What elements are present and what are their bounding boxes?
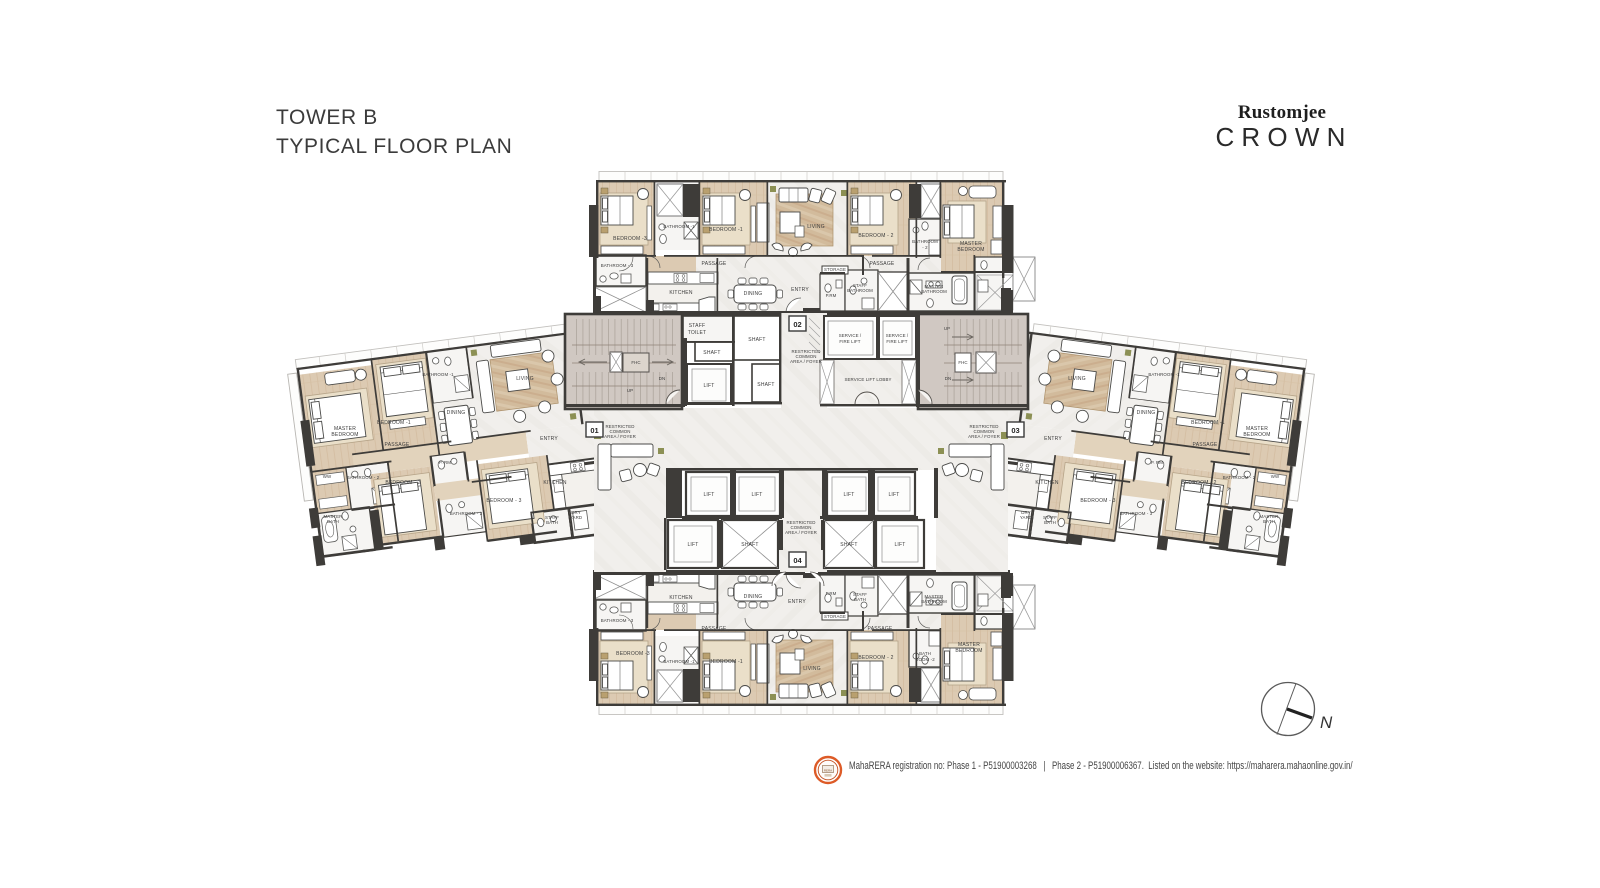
svg-text:PASSAGE: PASSAGE — [868, 626, 893, 632]
svg-text:N: N — [1320, 713, 1333, 732]
svg-text:ENTRY: ENTRY — [540, 436, 558, 442]
svg-text:AREA / FOYER: AREA / FOYER — [785, 530, 817, 535]
svg-text:LIFT: LIFT — [703, 383, 714, 389]
svg-text:FIRE LIFT: FIRE LIFT — [839, 339, 860, 344]
svg-text:FHC: FHC — [958, 360, 967, 365]
svg-text:BATHROOM -1: BATHROOM -1 — [1148, 372, 1180, 377]
svg-text:BATHROOM: BATHROOM — [912, 239, 938, 244]
svg-text:DN: DN — [659, 376, 666, 381]
svg-text:BEDROOM: BEDROOM — [955, 648, 982, 654]
svg-text:LIFT: LIFT — [894, 542, 905, 548]
svg-text:SERVICE /: SERVICE / — [839, 333, 862, 338]
svg-text:BATHROOM - 2: BATHROOM - 2 — [347, 475, 380, 480]
svg-text:BATHROOM - 3: BATHROOM - 3 — [601, 618, 634, 623]
svg-text:PASSAGE: PASSAGE — [702, 626, 727, 632]
svg-text:WW: WW — [1271, 474, 1280, 479]
svg-text:LIVING: LIVING — [803, 666, 821, 672]
svg-text:SHAFT: SHAFT — [703, 350, 720, 356]
svg-text:LIFT: LIFT — [703, 492, 714, 498]
svg-text:BEDROOM - 3: BEDROOM - 3 — [486, 498, 521, 504]
svg-text:SHAFT: SHAFT — [741, 542, 758, 548]
svg-text:ENTRY: ENTRY — [1044, 436, 1062, 442]
svg-text:BATHROOM - 3: BATHROOM - 3 — [1120, 511, 1153, 516]
svg-text:AREA / FOYER: AREA / FOYER — [968, 434, 1000, 439]
svg-text:DINING: DINING — [1137, 410, 1156, 416]
svg-text:BATHROOM: BATHROOM — [847, 288, 873, 293]
svg-text:STORAGE: STORAGE — [824, 614, 846, 619]
svg-text:BATH: BATH — [1044, 520, 1056, 525]
svg-text:SERVICE /: SERVICE / — [886, 333, 909, 338]
svg-text:LIFT: LIFT — [751, 492, 762, 498]
svg-text:BATH: BATH — [854, 597, 866, 602]
svg-text:BEDROOM - 2: BEDROOM - 2 — [1181, 480, 1216, 486]
svg-text:DINING: DINING — [744, 594, 763, 600]
svg-text:SHAFT: SHAFT — [748, 337, 765, 343]
svg-text:BEDROOM -1: BEDROOM -1 — [377, 420, 411, 426]
svg-text:04: 04 — [793, 556, 802, 565]
svg-text:BATHROOM: BATHROOM — [921, 599, 947, 604]
svg-text:WW: WW — [323, 474, 332, 479]
svg-text:SERVICE LIFT LOBBY: SERVICE LIFT LOBBY — [844, 377, 891, 382]
svg-text:PASSAGE: PASSAGE — [385, 442, 410, 448]
svg-text:SHAFT: SHAFT — [757, 382, 774, 388]
svg-text:BATHROOM: BATHROOM — [921, 289, 947, 294]
svg-text:YARD: YARD — [1020, 515, 1032, 520]
svg-text:BEDROOM - 2: BEDROOM - 2 — [858, 233, 893, 239]
svg-text:- 2: - 2 — [922, 245, 928, 250]
svg-text:KITCHEN: KITCHEN — [1035, 480, 1059, 486]
svg-text:PASSAGE: PASSAGE — [870, 261, 895, 267]
svg-text:STAFF: STAFF — [689, 323, 705, 329]
svg-text:DN: DN — [945, 376, 952, 381]
svg-text:BATHROOM -1: BATHROOM -1 — [422, 372, 454, 377]
svg-text:DINING: DINING — [744, 291, 763, 297]
svg-text:BEDROOM: BEDROOM — [957, 247, 984, 253]
svg-text:01: 01 — [590, 426, 598, 435]
svg-text:LIFT: LIFT — [843, 492, 854, 498]
svg-text:KITCHEN: KITCHEN — [543, 480, 567, 486]
svg-text:BATHROOM - 3: BATHROOM - 3 — [450, 511, 483, 516]
svg-text:LIFT: LIFT — [687, 542, 698, 548]
svg-text:BEDROOM -1: BEDROOM -1 — [709, 659, 743, 665]
svg-text:LIVING: LIVING — [516, 376, 534, 382]
svg-text:BATH: BATH — [1263, 519, 1275, 524]
svg-text:P.RM: P.RM — [826, 293, 837, 298]
svg-text:FHC: FHC — [631, 360, 640, 365]
svg-text:BATH: BATH — [919, 651, 931, 656]
svg-text:PASSAGE: PASSAGE — [702, 261, 727, 267]
svg-text:TOILET: TOILET — [688, 330, 707, 336]
svg-text:P.RM: P.RM — [826, 591, 837, 596]
svg-text:RERA: RERA — [824, 769, 832, 773]
svg-text:AREA / FOYER: AREA / FOYER — [790, 359, 822, 364]
svg-text:BATHROOM -1: BATHROOM -1 — [663, 224, 695, 229]
svg-text:ROOM -2: ROOM -2 — [915, 657, 935, 662]
svg-text:BEDROOM -1: BEDROOM -1 — [709, 227, 743, 233]
svg-text:BATH: BATH — [327, 519, 339, 524]
svg-text:BEDROOM: BEDROOM — [331, 432, 358, 438]
svg-text:BEDROOM - 2: BEDROOM - 2 — [858, 655, 893, 661]
svg-text:BEDROOM -1: BEDROOM -1 — [1191, 420, 1225, 426]
svg-text:STORAGE: STORAGE — [824, 267, 846, 272]
svg-text:P. RM: P. RM — [1151, 460, 1163, 465]
svg-text:BATH: BATH — [546, 520, 558, 525]
svg-text:PASSAGE: PASSAGE — [1193, 442, 1218, 448]
svg-text:BEDROOM - 3: BEDROOM - 3 — [1080, 498, 1115, 504]
svg-text:AREA / FOYER: AREA / FOYER — [604, 434, 636, 439]
svg-text:KITCHEN: KITCHEN — [669, 595, 693, 601]
svg-text:LIFT: LIFT — [888, 492, 899, 498]
svg-text:BATHROOM - 3: BATHROOM - 3 — [601, 263, 634, 268]
svg-text:BEDROOM -3: BEDROOM -3 — [616, 651, 650, 657]
svg-text:DINING: DINING — [447, 410, 466, 416]
svg-text:ENTRY: ENTRY — [791, 287, 809, 293]
svg-text:03: 03 — [1011, 426, 1019, 435]
svg-text:02: 02 — [793, 320, 801, 329]
svg-text:ENTRY: ENTRY — [788, 599, 806, 605]
svg-text:BATHROOM - 2: BATHROOM - 2 — [1223, 475, 1256, 480]
svg-text:P. RM: P. RM — [439, 460, 451, 465]
svg-text:BATHROOM -1: BATHROOM -1 — [663, 659, 695, 664]
svg-text:LIVING: LIVING — [1068, 376, 1086, 382]
svg-text:UP: UP — [627, 388, 633, 393]
svg-text:KITCHEN: KITCHEN — [669, 290, 693, 296]
svg-text:BEDROOM: BEDROOM — [1243, 432, 1270, 438]
svg-text:YARD: YARD — [570, 515, 582, 520]
svg-text:FIRE LIFT: FIRE LIFT — [886, 339, 907, 344]
svg-text:UP: UP — [944, 326, 950, 331]
svg-text:SHAFT: SHAFT — [840, 542, 857, 548]
svg-text:LIVING: LIVING — [807, 224, 825, 230]
svg-text:BEDROOM -3: BEDROOM -3 — [613, 236, 647, 242]
svg-text:BEDROOM - 2: BEDROOM - 2 — [385, 480, 420, 486]
